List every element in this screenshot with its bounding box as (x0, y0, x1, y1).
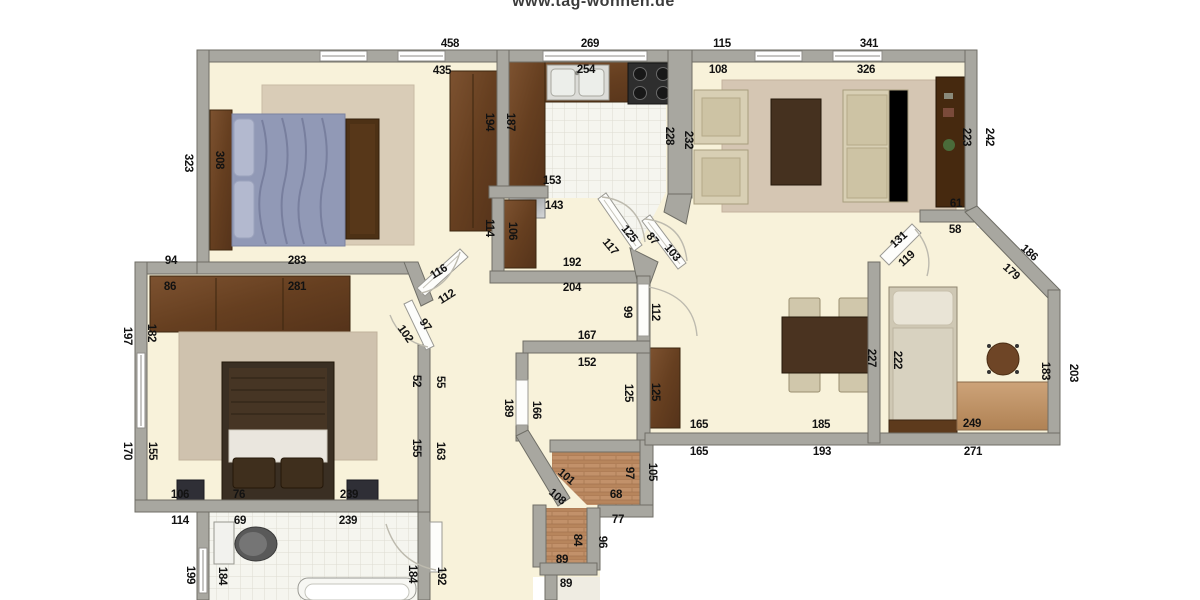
dimension-label: 94 (165, 255, 177, 267)
door-wc (516, 380, 528, 425)
dimension-label: 239 (340, 489, 358, 501)
dimension-label: 182 (145, 324, 157, 342)
dimension-label: 77 (612, 514, 624, 526)
dimension-label: 166 (530, 401, 542, 419)
dimension-label: 167 (578, 330, 596, 342)
dimension-label: 227 (865, 349, 877, 367)
dimension-label: 194 (483, 113, 495, 131)
dimension-label: 55 (434, 376, 446, 388)
dimension-label: 271 (964, 446, 982, 458)
dimension-label: 204 (563, 282, 581, 294)
dimension-label: 170 (121, 442, 133, 460)
door-dining (638, 284, 649, 336)
dimension-label: 281 (288, 281, 306, 293)
dimension-label: 125 (622, 384, 634, 402)
desk-chair (987, 343, 1019, 375)
dimension-label: 192 (563, 257, 581, 269)
dimension-label: 242 (983, 128, 995, 146)
dimension-label: 165 (690, 419, 708, 431)
dimension-label: 89 (560, 578, 572, 590)
dimension-label: 106 (171, 489, 189, 501)
bed1-pillow (234, 181, 254, 238)
dimension-label: 189 (502, 399, 514, 417)
dimension-label: 249 (963, 418, 981, 430)
bed1-pillow (234, 119, 254, 176)
dimension-label: 228 (663, 127, 675, 145)
dimension-label: 458 (441, 38, 459, 50)
dimension-label: 84 (571, 534, 583, 546)
dimension-label: 193 (813, 446, 831, 458)
dimension-label: 184 (406, 565, 418, 583)
dimension-label: 61 (950, 198, 962, 210)
dimension-label: 52 (410, 375, 422, 387)
dimension-label: 323 (182, 154, 194, 172)
dimension-label: 99 (621, 306, 633, 318)
dimension-label: 197 (121, 327, 133, 345)
bedroom2-wardrobe (150, 276, 350, 332)
dimension-label: 114 (171, 515, 189, 527)
dimension-label: 76 (233, 489, 245, 501)
toilet-tank (214, 522, 234, 564)
dimension-label: 199 (184, 566, 196, 584)
dining-table (782, 317, 878, 373)
living-room-furniture (694, 77, 966, 212)
dimension-label: 108 (709, 64, 727, 76)
dimension-label: 308 (213, 151, 225, 169)
dimension-label: 115 (713, 38, 731, 50)
floor-plan-drawing (0, 0, 1200, 600)
dimension-label: 187 (504, 113, 516, 131)
dimension-label: 254 (577, 64, 595, 76)
dimension-label: 112 (649, 303, 661, 321)
dimension-label: 232 (682, 131, 694, 149)
dimension-label: 114 (483, 219, 495, 237)
dimension-label: 68 (610, 489, 622, 501)
dimension-label: 269 (581, 38, 599, 50)
dimension-label: 155 (410, 439, 422, 457)
dimension-label: 283 (288, 255, 306, 267)
dimension-label: 183 (1039, 362, 1051, 380)
coffee-table (771, 99, 821, 185)
dimension-label: 163 (434, 442, 446, 460)
dimension-label: 326 (857, 64, 875, 76)
dimension-label: 86 (164, 281, 176, 293)
dimension-label: 184 (216, 567, 228, 585)
bed1-headboard (210, 110, 232, 250)
floor-plan: www.tag-wohnen.de (0, 0, 1200, 600)
dimension-label: 106 (506, 222, 518, 240)
dimension-label: 341 (860, 38, 878, 50)
dimension-label: 69 (234, 515, 246, 527)
dimension-label: 223 (960, 128, 972, 146)
dimension-label: 97 (623, 467, 635, 479)
dimension-label: 89 (556, 554, 568, 566)
dimension-label: 152 (578, 357, 596, 369)
dimension-label: 153 (543, 175, 561, 187)
dimension-label: 185 (812, 419, 830, 431)
dimension-label: 192 (435, 567, 447, 585)
dimension-label: 203 (1067, 364, 1079, 382)
dimension-label: 125 (649, 383, 661, 401)
dimension-label: 165 (690, 446, 708, 458)
dimension-label: 96 (596, 536, 608, 548)
dimension-label: 239 (339, 515, 357, 527)
dimension-label: 435 (433, 65, 451, 77)
dimension-label: 155 (146, 442, 158, 460)
dimension-label: 143 (545, 200, 563, 212)
dimension-label: 105 (646, 463, 658, 481)
door-bathroom (430, 522, 442, 572)
living-rug (722, 80, 956, 212)
dimension-label: 58 (949, 224, 961, 236)
dimension-label: 222 (891, 351, 903, 369)
